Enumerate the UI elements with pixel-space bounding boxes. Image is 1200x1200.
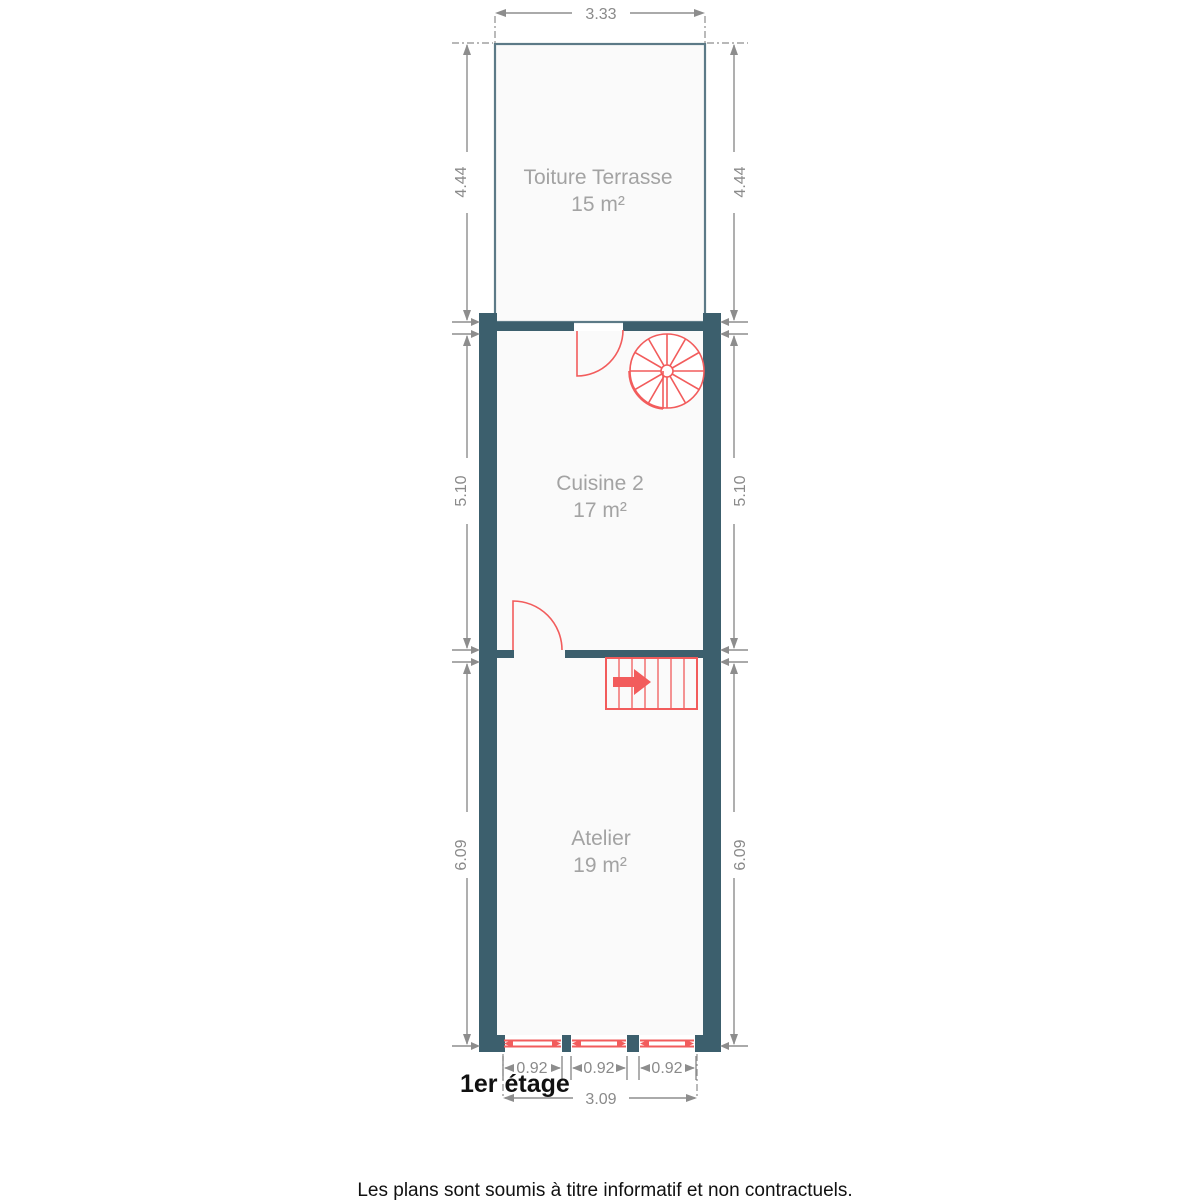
- kitchen-room-name: Cuisine 2: [556, 472, 644, 495]
- floor-plan-page: 3.33 4.44 5.10 6.09: [0, 0, 1200, 1200]
- svg-text:4.44: 4.44: [732, 166, 749, 197]
- floor-title: 1er étage: [460, 1070, 570, 1098]
- spiral-staircase-icon: [629, 334, 704, 409]
- main-building-interior: [497, 331, 703, 1035]
- dimension-right-workshop-depth: 6.09: [720, 658, 749, 1050]
- window-icon-2: [572, 1040, 626, 1048]
- svg-text:4.44: 4.44: [453, 166, 470, 197]
- dimension-terrace-width: 3.33: [452, 6, 748, 43]
- dimension-right-terrace-depth: 4.44: [720, 44, 749, 326]
- window-icon-3: [640, 1040, 694, 1048]
- kitchen-room-area: 17 m²: [573, 499, 627, 522]
- svg-text:3.09: 3.09: [585, 1091, 616, 1108]
- dimension-left-terrace-depth: 4.44: [452, 44, 480, 326]
- window-icon-1: [504, 1040, 561, 1048]
- terrace-room-area: 15 m²: [571, 193, 625, 216]
- svg-text:5.10: 5.10: [732, 475, 749, 506]
- svg-text:0.92: 0.92: [651, 1060, 682, 1077]
- workshop-room-area: 19 m²: [573, 854, 627, 877]
- floor-plan-drawing: 3.33 4.44 5.10 6.09: [0, 0, 1200, 1200]
- dimension-right-kitchen-depth: 5.10: [720, 330, 749, 654]
- dimension-window-2: 0.92: [571, 1056, 627, 1080]
- svg-text:5.10: 5.10: [453, 475, 470, 506]
- dimension-window-3: 0.92: [639, 1056, 696, 1080]
- disclaimer-text: Les plans sont soumis à titre informatif…: [357, 1180, 852, 1200]
- workshop-room-name: Atelier: [571, 827, 631, 850]
- svg-text:3.33: 3.33: [585, 6, 616, 23]
- svg-text:6.09: 6.09: [732, 839, 749, 870]
- terrace-room-name: Toiture Terrasse: [523, 166, 672, 189]
- svg-text:6.09: 6.09: [453, 839, 470, 870]
- svg-text:0.92: 0.92: [583, 1060, 614, 1077]
- dimension-left-workshop-depth: 6.09: [452, 658, 480, 1050]
- dimension-left-kitchen-depth: 5.10: [452, 330, 480, 654]
